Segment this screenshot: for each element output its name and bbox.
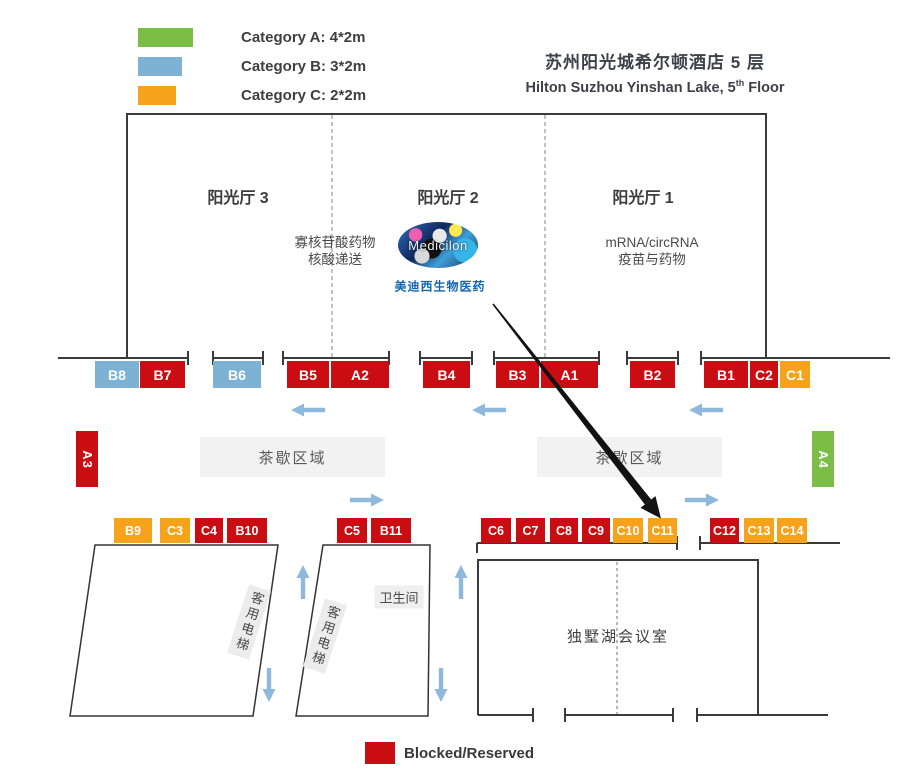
booth-label: C8 — [556, 524, 572, 538]
blocked-swatch — [365, 742, 395, 764]
medicilon-logo-text: Medicilon — [408, 238, 467, 253]
title-english-text: Hilton Suzhou Yinshan Lake, 5 — [525, 80, 735, 96]
booth-label: B3 — [509, 367, 527, 383]
title-english-suffix: Floor — [744, 80, 784, 96]
legend-item-label: Category B: 3*2m — [241, 58, 366, 75]
legend-bottom: Blocked/Reserved — [365, 742, 534, 764]
booth-label: C11 — [651, 524, 673, 538]
legend-item-cat_a: Category A: 4*2m — [138, 28, 365, 47]
booth-label: C3 — [167, 524, 183, 538]
booth-c14: C14 — [777, 518, 807, 543]
booth-label: B4 — [438, 367, 456, 383]
booth-b3: B3 — [496, 361, 539, 388]
booth-b1: B1 — [704, 361, 748, 388]
tea-break-area: 茶歇区域 — [200, 437, 385, 477]
restroom-label: 卫生间 — [374, 586, 423, 609]
labels-layer: Category A: 4*2mCategory B: 3*2mCategory… — [0, 0, 900, 773]
booth-label: C13 — [748, 524, 771, 538]
booth-label: B7 — [154, 367, 172, 383]
booth-label: B5 — [299, 367, 317, 383]
booth-label: C6 — [488, 524, 504, 538]
booth-b2: B2 — [630, 361, 675, 388]
hall-annotation: 寡核苷酸药物核酸递送 — [295, 235, 376, 269]
booth-label: C14 — [781, 524, 804, 538]
booth-label: B9 — [125, 524, 141, 538]
blocked-label: Blocked/Reserved — [404, 745, 534, 762]
booth-c5: C5 — [337, 518, 367, 543]
booth-b11: B11 — [371, 518, 411, 543]
legend-item-label: Category A: 4*2m — [241, 29, 365, 46]
booth-label: C1 — [786, 367, 804, 383]
booth-c8: C8 — [550, 518, 578, 543]
booth-label: C5 — [344, 524, 360, 538]
booth-c13: C13 — [744, 518, 774, 543]
booth-b5: B5 — [287, 361, 329, 388]
booth-label: B2 — [644, 367, 662, 383]
legend-item-label: Category C: 2*2m — [241, 87, 366, 104]
booth-c7: C7 — [516, 518, 545, 543]
booth-label: B10 — [236, 524, 259, 538]
floor-plan: Category A: 4*2mCategory B: 3*2mCategory… — [0, 0, 900, 773]
booth-label: C4 — [201, 524, 217, 538]
booth-c4: C4 — [195, 518, 223, 543]
medicilon-caption: 美迪西生物医药 — [394, 278, 485, 295]
booth-label: C7 — [523, 524, 539, 538]
booth-label: C9 — [588, 524, 604, 538]
cat_c-swatch — [138, 86, 176, 105]
booth-a4: A4 — [812, 431, 834, 487]
medicilon-logo: Medicilon — [398, 222, 478, 268]
booth-c11: C11 — [648, 518, 677, 543]
guest-elevator-label: 客用电梯 — [303, 598, 347, 674]
booth-a2: A2 — [331, 361, 389, 388]
booth-c10: C10 — [613, 518, 643, 543]
booth-label: A1 — [561, 367, 579, 383]
tea-break-area: 茶歇区域 — [537, 437, 722, 477]
title-english-ordinal: th — [736, 78, 745, 88]
legend-item-cat_b: Category B: 3*2m — [138, 57, 366, 76]
header: 苏州阳光城希尔顿酒店 5 层 Hilton Suzhou Yinshan Lak… — [495, 48, 815, 96]
booth-c3: C3 — [160, 518, 190, 543]
booth-b9: B9 — [114, 518, 152, 543]
booth-a1: A1 — [541, 361, 598, 388]
booth-label: A4 — [816, 450, 831, 469]
booth-label: A3 — [80, 450, 95, 469]
booth-label: C2 — [755, 367, 773, 383]
hall-name: 阳光厅 2 — [417, 184, 478, 208]
booth-c1: C1 — [780, 361, 810, 388]
booth-c12: C12 — [710, 518, 739, 543]
booth-label: B1 — [717, 367, 735, 383]
hall-name: 阳光厅 1 — [612, 184, 673, 208]
hall-name: 阳光厅 3 — [207, 184, 268, 208]
guest-elevator-label: 客用电梯 — [227, 584, 271, 660]
booth-b4: B4 — [423, 361, 470, 388]
booth-label: C10 — [617, 524, 640, 538]
booth-b7: B7 — [140, 361, 185, 388]
cat_b-swatch — [138, 57, 182, 76]
booth-label: B11 — [380, 524, 402, 538]
booth-a3: A3 — [76, 431, 98, 487]
hall-annotation: mRNA/circRNA疫苗与药物 — [606, 235, 699, 269]
booth-c2: C2 — [750, 361, 778, 388]
cat_a-swatch — [138, 28, 193, 47]
booth-b10: B10 — [227, 518, 267, 543]
meeting-room-label: 独墅湖会议室 — [567, 626, 669, 647]
booth-c6: C6 — [481, 518, 511, 543]
booth-c9: C9 — [582, 518, 610, 543]
booth-label: C12 — [713, 524, 736, 538]
title-chinese: 苏州阳光城希尔顿酒店 5 层 — [495, 48, 815, 73]
booth-label: B6 — [228, 367, 246, 383]
legend-item-cat_c: Category C: 2*2m — [138, 86, 366, 105]
booth-b6: B6 — [213, 361, 261, 388]
booth-label: A2 — [351, 367, 369, 383]
title-english: Hilton Suzhou Yinshan Lake, 5th Floor — [495, 78, 815, 96]
booth-b8: B8 — [95, 361, 139, 388]
booth-label: B8 — [108, 367, 126, 383]
